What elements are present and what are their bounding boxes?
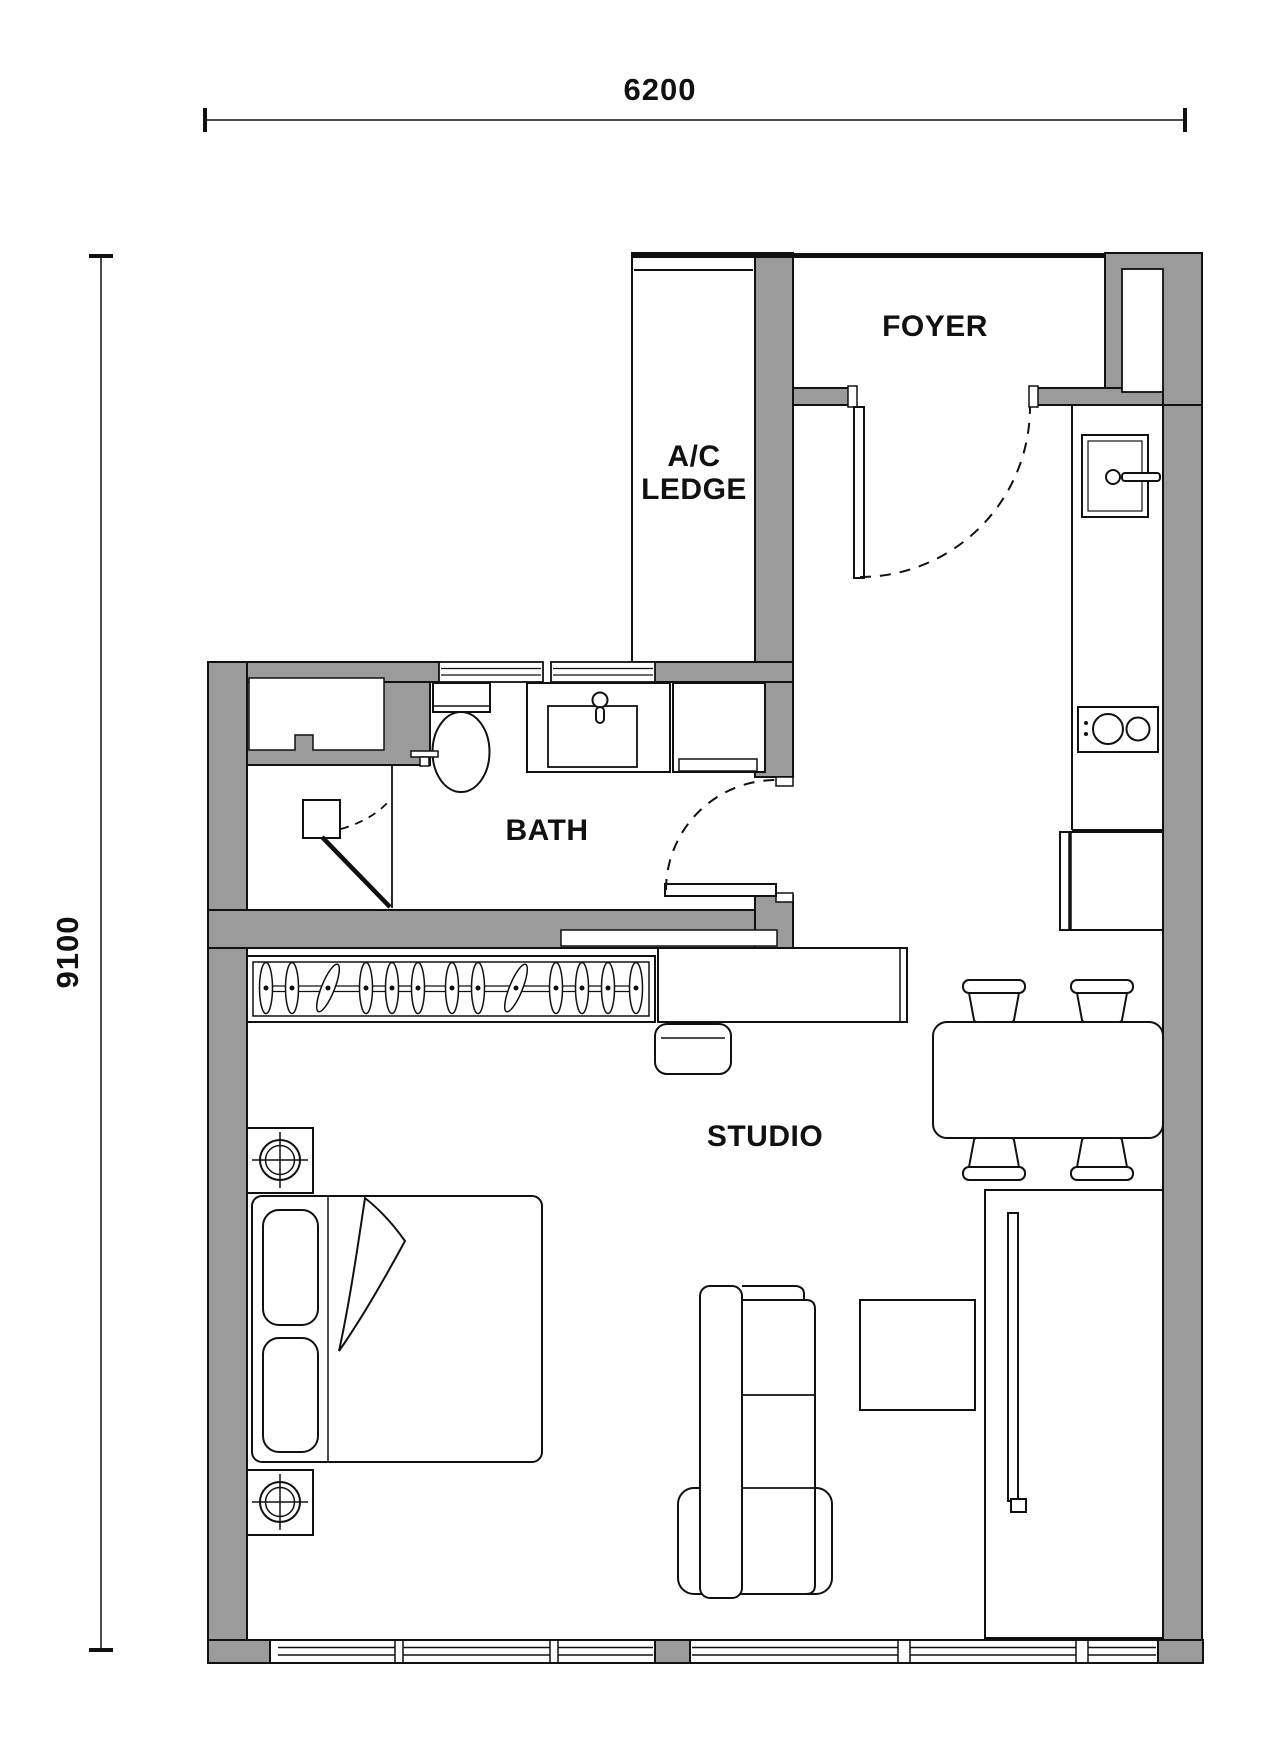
shower-head-icon <box>411 751 438 757</box>
wall-recess-window <box>1122 269 1163 392</box>
ac-ledge-label-1: A/C <box>667 440 720 473</box>
dining-chair <box>1071 980 1133 1022</box>
desk <box>658 948 907 1022</box>
bedside-table-top <box>247 1128 313 1193</box>
shower <box>303 751 438 908</box>
pillow-icon <box>263 1210 318 1325</box>
window-mullions <box>395 1640 1088 1663</box>
wall-bath-top-right <box>653 662 793 682</box>
dimension-left-value: 9100 <box>50 916 85 989</box>
shower-pivot-block <box>303 800 340 838</box>
desk-chair <box>655 1024 731 1074</box>
bath-cabinet-drawer <box>679 759 757 771</box>
door-frame-left <box>848 386 857 407</box>
dimension-tick-bottom <box>89 1648 113 1652</box>
wall-bottom-corner-right <box>1158 1640 1203 1663</box>
dining-set <box>933 980 1163 1180</box>
cooktop-icon <box>1078 707 1158 752</box>
floor-plan-canvas: 6200 9100 A/C LEDGE FOYER <box>0 0 1273 1757</box>
wall-left <box>208 662 247 1663</box>
foyer-label: FOYER <box>882 310 988 343</box>
entry-door-leaf <box>854 407 864 578</box>
tv-icon <box>1008 1213 1018 1501</box>
wardrobe-hangers <box>247 956 655 1022</box>
floor-plan-drawing: 6200 9100 A/C LEDGE FOYER <box>0 0 1273 1757</box>
wall-right <box>1163 405 1202 1663</box>
shower-wall-niche <box>249 678 384 750</box>
dimension-tick-right <box>1183 108 1187 132</box>
kitchen-sink-icon <box>1082 435 1160 517</box>
dimension-left: 9100 <box>50 254 113 1652</box>
wall-bottom-corner-left <box>208 1640 270 1663</box>
ac-ledge-label-2: LEDGE <box>641 473 747 506</box>
dimension-top: 6200 <box>203 72 1187 132</box>
vanity-sink-icon <box>527 683 670 772</box>
sofa-back <box>700 1286 742 1598</box>
window-wall-bottom <box>208 1640 1203 1663</box>
bath-window <box>439 662 655 682</box>
shower-door-swing-arc <box>341 801 389 829</box>
window-glazing <box>278 1648 1156 1656</box>
studio: STUDIO <box>247 948 1163 1638</box>
door-frame-right <box>1029 386 1038 407</box>
ac-ledge: A/C LEDGE <box>632 253 755 662</box>
dimension-tick-top <box>89 254 113 258</box>
studio-label: STUDIO <box>707 1120 823 1153</box>
bath-door-frame-top <box>776 777 793 786</box>
bed-area <box>247 1128 542 1535</box>
dining-chair <box>963 1138 1025 1180</box>
bath-door-frame-bottom <box>776 893 793 902</box>
kitchen <box>1060 405 1163 930</box>
sofa <box>678 1286 832 1598</box>
wall-foyer-bottom-left <box>793 388 851 405</box>
sofa-arm <box>742 1286 804 1300</box>
bath-door <box>665 777 793 902</box>
coffee-table <box>860 1300 975 1410</box>
tv-mount <box>1011 1499 1026 1512</box>
faucet-icon <box>1106 470 1120 484</box>
dimension-tick-left <box>203 108 207 132</box>
bed <box>252 1196 542 1462</box>
dimension-top-value: 6200 <box>624 72 697 107</box>
tv-console <box>985 1190 1163 1638</box>
bedside-table-bottom <box>247 1470 313 1535</box>
bath-door-leaf <box>665 884 776 896</box>
foyer: FOYER <box>848 310 1038 578</box>
toilet-icon <box>433 683 491 792</box>
bath-door-swing-arc <box>666 780 776 890</box>
dining-chair <box>1071 1138 1133 1180</box>
shower-door-leaf <box>322 837 390 907</box>
wall-ledge-strip <box>561 930 777 946</box>
entry-door-swing-arc <box>860 407 1030 577</box>
faucet-handle <box>1122 473 1160 481</box>
bath-label: BATH <box>505 814 588 847</box>
wall-bottom-mullion <box>655 1640 690 1663</box>
dining-table <box>933 1022 1163 1138</box>
vanity-faucet-icon <box>593 693 608 708</box>
fridge-icon <box>1060 832 1163 930</box>
dining-chair <box>963 980 1025 1022</box>
pillow-icon <box>263 1338 318 1452</box>
